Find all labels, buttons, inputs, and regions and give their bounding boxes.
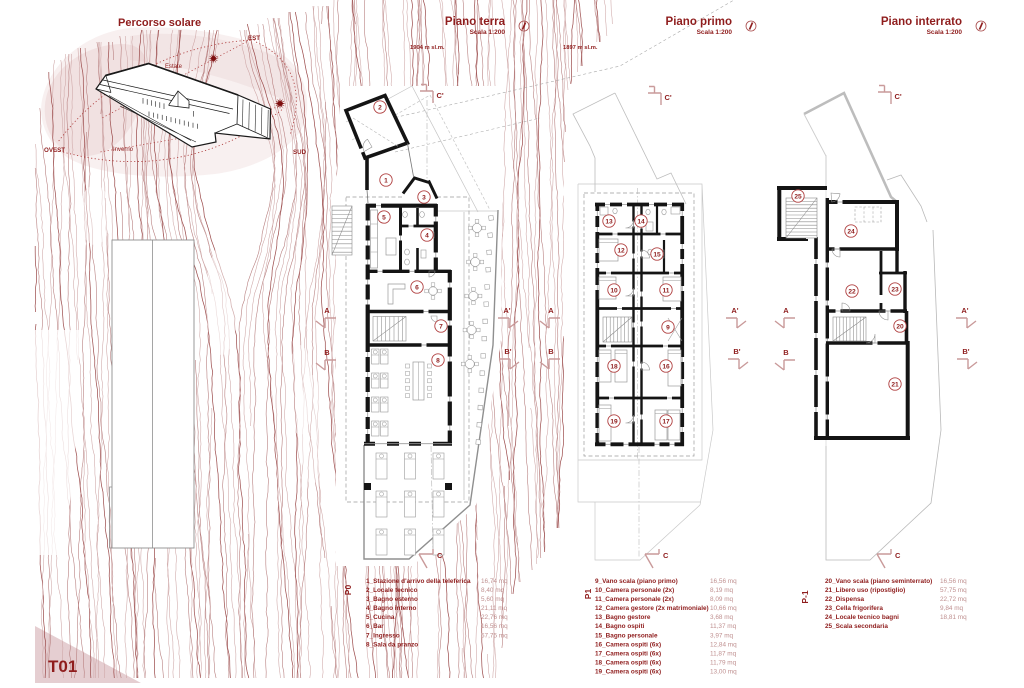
- svg-text:C: C: [437, 551, 443, 560]
- svg-text:Piano terra: Piano terra: [445, 16, 506, 28]
- svg-text:B': B': [504, 347, 511, 356]
- svg-text:7_Ingresso: 7_Ingresso: [366, 632, 400, 639]
- svg-text:C': C': [895, 92, 902, 101]
- svg-text:B': B': [962, 347, 969, 356]
- svg-text:12_Camera gestore (2x matrimon: 12_Camera gestore (2x matrimoniale): [595, 605, 709, 612]
- svg-text:1897 m sl.m.: 1897 m sl.m.: [563, 45, 598, 51]
- svg-text:11,37 mq: 11,37 mq: [710, 623, 737, 630]
- svg-text:3_Bagno esterno: 3_Bagno esterno: [366, 596, 418, 603]
- svg-text:5_Cucina: 5_Cucina: [366, 614, 395, 621]
- svg-text:21,11 mq: 21,11 mq: [481, 605, 508, 612]
- svg-text:16,56 mq: 16,56 mq: [481, 623, 508, 630]
- svg-text:6_Bar: 6_Bar: [366, 623, 384, 630]
- svg-text:15_Bagno personale: 15_Bagno personale: [595, 632, 658, 639]
- svg-text:11: 11: [663, 287, 670, 294]
- svg-text:B: B: [548, 347, 554, 356]
- svg-text:4: 4: [425, 232, 429, 239]
- svg-text:B: B: [324, 348, 330, 357]
- svg-text:20: 20: [896, 323, 904, 330]
- svg-text:5: 5: [382, 214, 386, 221]
- svg-text:Scala 1:200: Scala 1:200: [927, 29, 963, 36]
- svg-text:OVEST: OVEST: [44, 147, 65, 154]
- svg-text:B': B': [733, 347, 740, 356]
- svg-text:18_Camera ospiti (6x): 18_Camera ospiti (6x): [595, 660, 661, 667]
- svg-text:11,87 mq: 11,87 mq: [710, 650, 737, 657]
- svg-text:P0: P0: [343, 585, 353, 596]
- svg-text:Piano primo: Piano primo: [666, 16, 732, 28]
- svg-text:P-1: P-1: [800, 590, 810, 604]
- svg-text:1: 1: [384, 177, 388, 184]
- svg-text:A: A: [324, 306, 330, 315]
- svg-text:8: 8: [436, 357, 440, 364]
- svg-text:8_Sala da pranzo: 8_Sala da pranzo: [366, 641, 418, 648]
- svg-text:Estate: Estate: [165, 64, 183, 70]
- svg-text:Percorso solare: Percorso solare: [118, 17, 201, 29]
- svg-text:8,19 mq: 8,19 mq: [710, 587, 734, 594]
- svg-text:10,66 mq: 10,66 mq: [710, 605, 737, 612]
- svg-text:9_Vano scala (piano primo): 9_Vano scala (piano primo): [595, 578, 678, 585]
- svg-text:16,56 mq: 16,56 mq: [940, 578, 967, 585]
- svg-text:23: 23: [891, 286, 899, 293]
- svg-text:22_Dispensa: 22_Dispensa: [825, 596, 865, 603]
- svg-text:13_Bagno gestore: 13_Bagno gestore: [595, 614, 651, 621]
- svg-text:A: A: [783, 306, 789, 315]
- svg-text:6: 6: [415, 284, 419, 291]
- svg-text:SUD: SUD: [293, 149, 307, 156]
- svg-text:A': A': [731, 306, 738, 315]
- svg-text:22,72 mq: 22,72 mq: [940, 596, 967, 603]
- svg-text:2_Locale tecnico: 2_Locale tecnico: [366, 587, 418, 594]
- svg-text:9: 9: [666, 324, 670, 331]
- svg-text:22: 22: [848, 288, 856, 295]
- svg-text:C: C: [895, 551, 901, 560]
- svg-text:20_Vano scala (piano seminterr: 20_Vano scala (piano seminterrato): [825, 578, 932, 585]
- svg-text:22,76 mq: 22,76 mq: [481, 614, 508, 621]
- svg-text:2: 2: [378, 104, 382, 111]
- svg-text:Scala 1:200: Scala 1:200: [470, 29, 506, 36]
- svg-text:Inverno: Inverno: [113, 147, 134, 153]
- svg-text:12: 12: [617, 247, 625, 254]
- svg-text:3,68 mq: 3,68 mq: [710, 614, 734, 621]
- svg-text:23_Cella frigorifera: 23_Cella frigorifera: [825, 605, 883, 612]
- svg-text:14_Bagno ospiti: 14_Bagno ospiti: [595, 623, 645, 630]
- svg-text:C': C': [665, 93, 672, 102]
- svg-text:21_Libero uso (ripostiglio): 21_Libero uso (ripostiglio): [825, 587, 905, 594]
- svg-text:19_Camera ospiti (6x): 19_Camera ospiti (6x): [595, 669, 661, 676]
- svg-text:3,97 mq: 3,97 mq: [710, 632, 734, 639]
- svg-text:8,09 mq: 8,09 mq: [710, 596, 734, 603]
- svg-text:Piano interrato: Piano interrato: [881, 16, 962, 28]
- svg-text:3: 3: [422, 194, 426, 201]
- svg-text:T01: T01: [48, 657, 77, 676]
- svg-text:11_Camera personale (2x): 11_Camera personale (2x): [595, 596, 674, 603]
- svg-text:21: 21: [891, 381, 899, 388]
- svg-text:13,00 mq: 13,00 mq: [710, 669, 737, 676]
- svg-text:18: 18: [610, 363, 618, 370]
- svg-text:Scala 1:200: Scala 1:200: [697, 29, 733, 36]
- svg-text:A': A': [503, 306, 510, 315]
- svg-text:19: 19: [610, 418, 618, 425]
- svg-text:C': C': [437, 91, 444, 100]
- svg-text:57,75 mq: 57,75 mq: [940, 587, 967, 594]
- svg-text:C: C: [663, 551, 669, 560]
- svg-text:1904 m sl.m.: 1904 m sl.m.: [410, 45, 445, 51]
- svg-text:B: B: [783, 348, 789, 357]
- svg-text:A': A': [961, 306, 968, 315]
- svg-text:7: 7: [439, 323, 443, 330]
- svg-text:15: 15: [653, 251, 661, 258]
- svg-text:25: 25: [794, 193, 802, 200]
- svg-text:EST: EST: [248, 35, 260, 42]
- svg-text:5,60 mq: 5,60 mq: [481, 596, 505, 603]
- svg-text:24: 24: [847, 228, 855, 235]
- svg-text:9,84 mq: 9,84 mq: [940, 605, 964, 612]
- svg-text:25_Scala secondaria: 25_Scala secondaria: [825, 623, 888, 630]
- svg-text:4_Bagno interno: 4_Bagno interno: [366, 605, 417, 612]
- svg-text:17: 17: [662, 418, 670, 425]
- svg-text:12,84 mq: 12,84 mq: [710, 641, 737, 648]
- svg-text:13: 13: [605, 218, 613, 225]
- svg-text:11,79 mq: 11,79 mq: [710, 660, 737, 667]
- svg-text:14: 14: [637, 218, 645, 225]
- svg-text:57,75 mq: 57,75 mq: [481, 632, 508, 639]
- svg-text:16: 16: [662, 363, 670, 370]
- svg-text:16,56 mq: 16,56 mq: [710, 578, 737, 585]
- svg-text:17_Camera ospiti (6x): 17_Camera ospiti (6x): [595, 650, 661, 657]
- svg-text:8,40 mq: 8,40 mq: [481, 587, 505, 594]
- svg-text:16,74 mq: 16,74 mq: [481, 578, 508, 585]
- svg-text:24_Locale tecnico bagni: 24_Locale tecnico bagni: [825, 614, 899, 621]
- svg-text:10: 10: [610, 287, 618, 294]
- svg-text:1_Stazione d'arrivo della tele: 1_Stazione d'arrivo della teleferica: [366, 578, 471, 585]
- svg-text:A: A: [548, 306, 554, 315]
- svg-text:10_Camera personale (2x): 10_Camera personale (2x): [595, 587, 674, 594]
- svg-text:16_Camera ospiti (6x): 16_Camera ospiti (6x): [595, 641, 661, 648]
- svg-text:18,81 mq: 18,81 mq: [940, 614, 967, 621]
- svg-text:P1: P1: [583, 589, 593, 600]
